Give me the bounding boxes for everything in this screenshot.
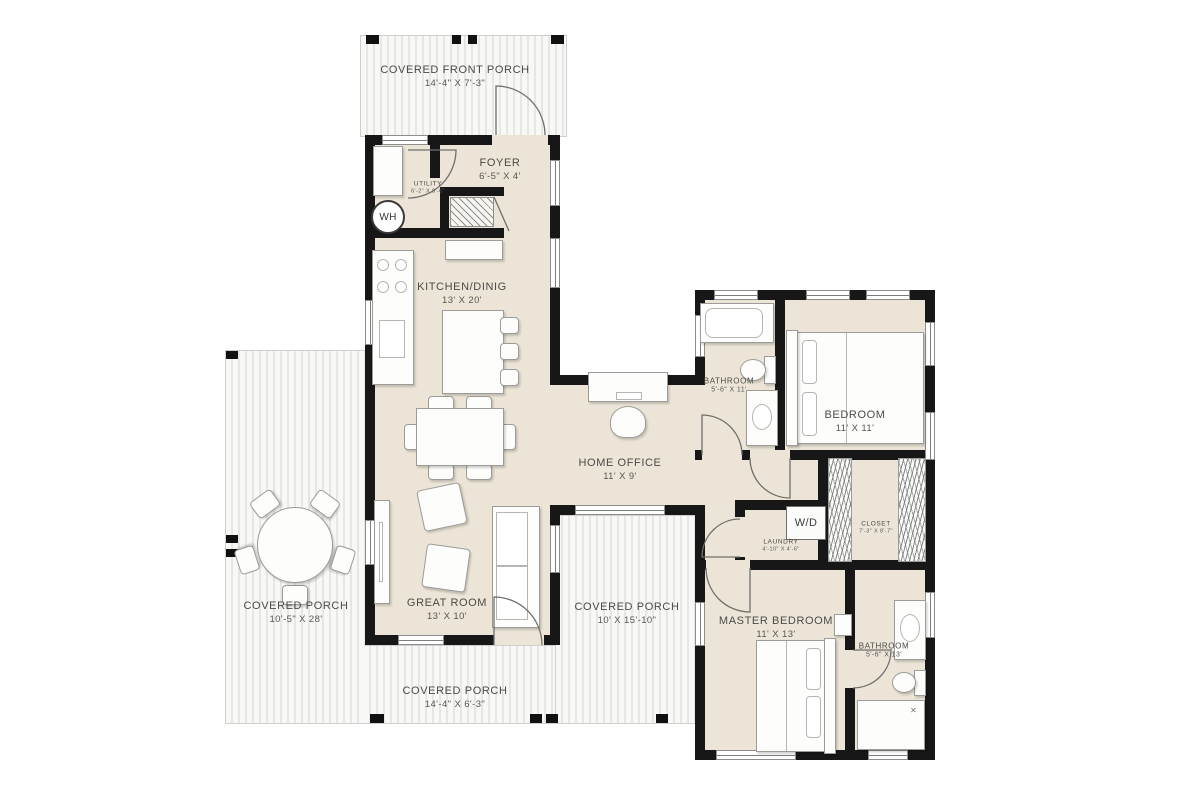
porch-post [370,714,384,723]
doorway [706,560,750,570]
porch-post [551,35,564,44]
porch-post [452,35,461,44]
armchair [421,543,471,593]
doorway [702,450,742,460]
window [925,322,935,366]
closet-hanging-rod [828,458,852,562]
room-label-covered-porch-mid: COVERED PORCH 10' X 15'-10" [575,601,680,627]
office-chair [610,406,646,438]
porch-post [530,714,542,723]
bar-stool [500,343,519,360]
water-heater-label: WH [379,212,396,223]
window [714,290,758,300]
foyer-closet-shelf [450,197,494,227]
window [806,290,850,300]
kitchen-island [442,310,504,394]
stove-burner-icon [377,259,389,271]
sofa-cushion [496,512,528,566]
room-label-laundry: LAUNDRY 4'-10" X 4'-6" [762,539,799,554]
window [575,505,665,515]
porch-post [468,35,477,44]
home-office-floor [550,385,705,505]
master-bed-headboard [824,638,836,754]
doorway [750,450,790,460]
dining-table [416,408,504,466]
closet-hanging-rod [898,458,926,562]
window [925,412,935,460]
window [550,525,560,573]
bar-stool [500,317,519,334]
sink-icon [900,614,920,642]
window [550,238,560,288]
porch-post [656,714,668,723]
room-label-bathroom-1: BATHROOM 5'-6" X 11' [704,377,754,396]
sofa-cushion [496,566,528,620]
room-label-home-office: HOME OFFICE 11' X 9' [579,457,662,483]
doorway [735,517,745,557]
room-label-covered-front-porch: COVERED FRONT PORCH 14'-4" X 7'-3" [380,64,529,90]
floor-plan: WH W/D [0,0,1200,800]
wall [440,187,504,196]
stove-burner-icon [395,259,407,271]
window [866,290,910,300]
toilet-bowl [892,672,916,693]
washer-dryer-label: W/D [795,517,818,529]
window [695,602,705,646]
kitchen-counter [372,250,414,385]
stove-burner-icon [395,281,407,293]
room-label-utility: UTILITY 6'-2" X 8'-6" [411,181,445,196]
water-heater-icon: WH [371,200,405,234]
doorway [845,650,855,688]
wall [440,228,504,238]
room-label-bedroom: BEDROOM 11' X 11' [824,409,885,435]
doorway [494,635,544,645]
window [925,592,935,638]
pillow [806,648,821,690]
porch-post [226,535,238,543]
room-label-closet: CLOSET 7'-3" X 8'-7" [859,521,893,536]
sink-icon [752,404,772,430]
window [868,750,908,760]
kitchen-sink-icon [379,320,405,358]
bar-stool [500,369,519,386]
bed-headboard [786,330,798,446]
armchair [416,482,468,532]
window [550,160,560,206]
room-label-kitchen-dining: KITCHEN/DINIG 13' X 20' [417,281,507,307]
room-label-master-bedroom: MASTER BEDROOM 11' X 13' [719,615,833,641]
pillow [806,696,821,738]
window [398,635,444,645]
washer-dryer: W/D [786,506,826,540]
room-label-covered-porch-left: COVERED PORCH 10'-5" X 28' [244,600,349,626]
bathtub-basin [705,308,763,338]
kitchen-cabinet [445,240,503,260]
window [382,135,428,145]
stove-burner-icon [377,281,389,293]
pillow [802,340,817,384]
blanket-line [786,641,787,751]
shower-drain-icon: ✕ [910,706,917,715]
wall [430,135,440,183]
dining-chair [428,464,454,480]
monitor-icon [616,392,642,400]
dining-chair [466,464,492,480]
porch-post [546,714,558,723]
master-bed [756,640,834,752]
room-label-covered-porch-bottom: COVERED PORCH 14'-4" X 6'-3" [403,685,508,711]
room-label-great-room: GREAT ROOM 13' X 10' [407,597,487,623]
tv-icon [379,522,383,582]
porch-round-table [257,507,333,583]
porch-post [226,351,238,359]
porch-post [366,35,379,44]
room-label-bathroom-2: BATHROOM 5'-6" X 13' [859,642,909,661]
nightstand [834,614,852,636]
doorway [492,135,548,145]
room-label-foyer: FOYER 6'-5" X 4' [479,157,521,183]
utility-counter [373,146,403,196]
pillow [802,392,817,436]
